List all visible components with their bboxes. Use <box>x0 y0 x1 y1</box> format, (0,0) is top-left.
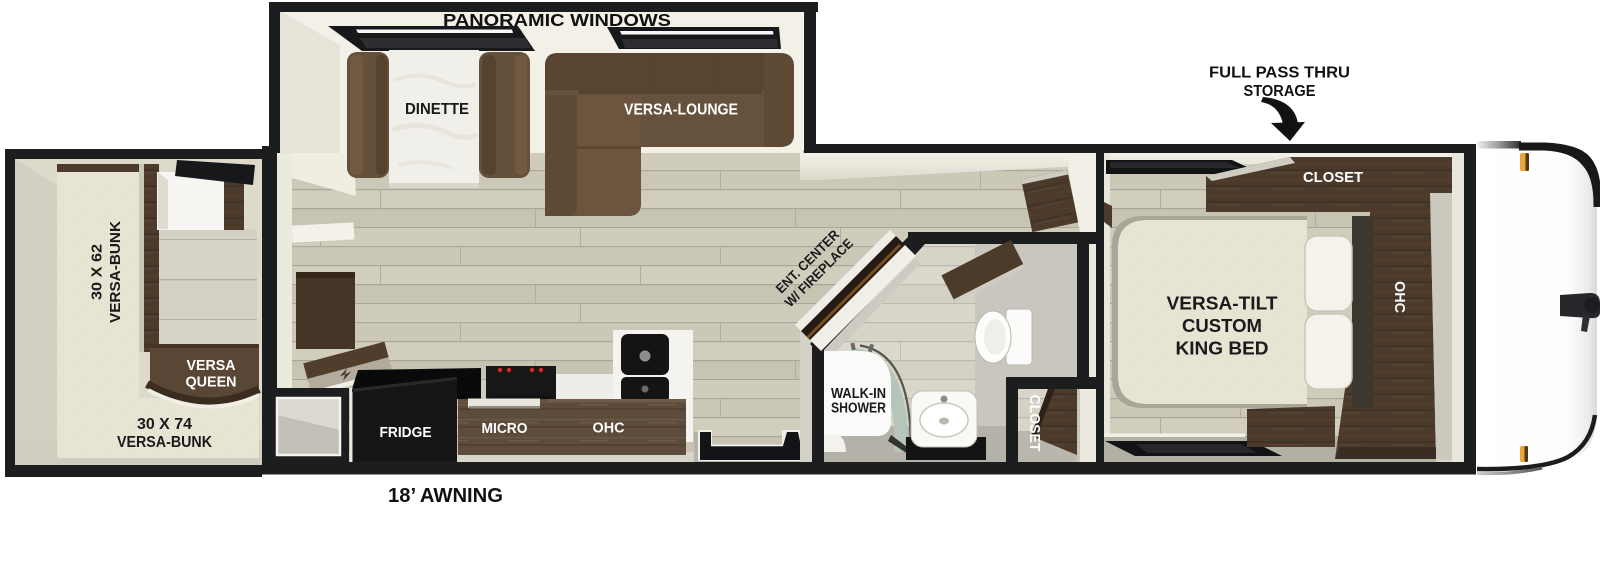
svg-text:VERSA-LOUNGE: VERSA-LOUNGE <box>624 102 738 119</box>
svg-text:SHOWER: SHOWER <box>831 401 886 417</box>
svg-text:30 X 74: 30 X 74 <box>137 416 192 433</box>
svg-text:QUEEN: QUEEN <box>186 374 237 391</box>
svg-text:VERSA-BUNK: VERSA-BUNK <box>117 434 213 451</box>
svg-text:KING BED: KING BED <box>1176 339 1269 359</box>
svg-text:PANORAMIC WINDOWS: PANORAMIC WINDOWS <box>443 10 671 30</box>
svg-text:CLOSET: CLOSET <box>1303 169 1363 186</box>
svg-text:VERSA: VERSA <box>187 357 236 374</box>
svg-text:FULL PASS THRU: FULL PASS THRU <box>1209 65 1350 82</box>
svg-text:VERSA-TILT: VERSA-TILT <box>1167 294 1278 314</box>
svg-text:OHC: OHC <box>593 421 626 437</box>
svg-text:OHC: OHC <box>1391 281 1407 314</box>
svg-text:MICRO: MICRO <box>482 421 528 437</box>
svg-text:CUSTOM: CUSTOM <box>1182 316 1262 336</box>
svg-text:STORAGE: STORAGE <box>1244 83 1316 100</box>
svg-text:FRIDGE: FRIDGE <box>380 425 432 441</box>
svg-text:DINETTE: DINETTE <box>405 101 469 118</box>
svg-text:30 X 62: 30 X 62 <box>89 244 106 300</box>
svg-text:VERSA-BUNK: VERSA-BUNK <box>107 221 124 323</box>
svg-text:CLOSET: CLOSET <box>1026 395 1042 452</box>
svg-text:18’ AWNING: 18’ AWNING <box>388 485 503 507</box>
